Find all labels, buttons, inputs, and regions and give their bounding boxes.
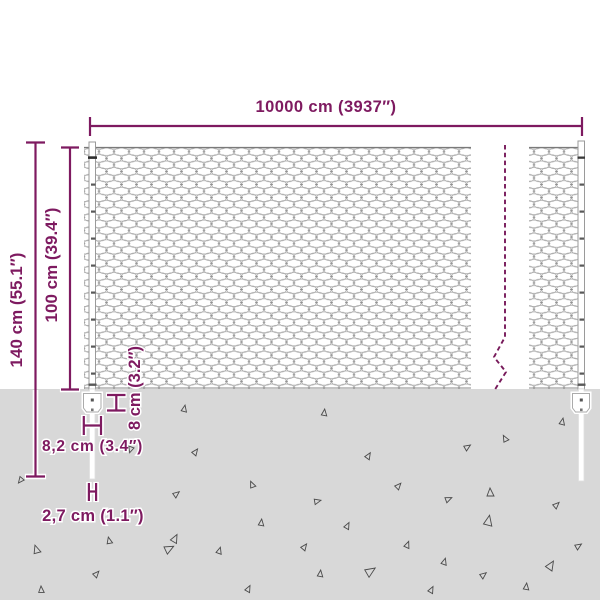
svg-text:140 cm (55.1″): 140 cm (55.1″): [7, 253, 26, 368]
svg-text:10000 cm (3937″): 10000 cm (3937″): [256, 98, 397, 116]
svg-text:100 cm (39.4″): 100 cm (39.4″): [42, 208, 61, 323]
svg-text:8 cm (3.2″): 8 cm (3.2″): [126, 346, 144, 430]
svg-text:2,7 cm (1.1″): 2,7 cm (1.1″): [42, 507, 144, 525]
svg-text:8,2 cm (3.4″): 8,2 cm (3.4″): [42, 438, 143, 455]
